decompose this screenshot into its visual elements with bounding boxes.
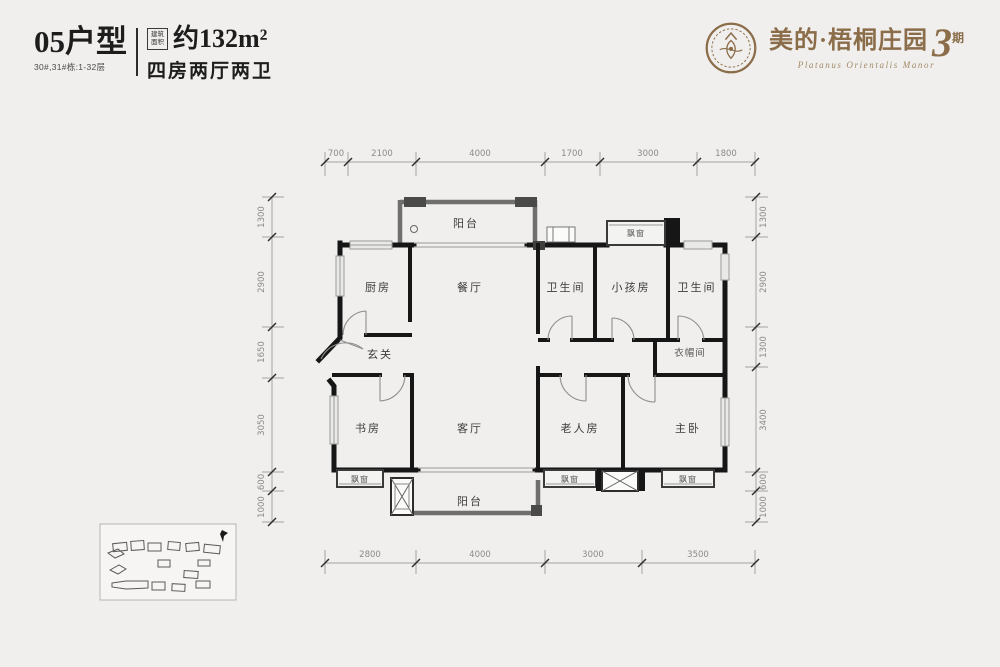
dim-right-3: 3400 <box>759 409 769 431</box>
dim-bottom-1: 4000 <box>469 550 491 560</box>
dimension-lines <box>262 152 768 574</box>
dim-bottom-0: 2800 <box>359 550 381 560</box>
room-label-bath2: 卫生间 <box>678 280 717 294</box>
dim-right-5: 1000 <box>759 496 769 518</box>
dim-right-4: 600 <box>759 474 769 490</box>
dim-top-4: 3000 <box>637 149 659 159</box>
room-label-balcony-top: 阳台 <box>453 216 479 230</box>
room-label-elder-room: 老人房 <box>561 422 600 435</box>
room-label-study: 书房 <box>355 422 381 435</box>
room-label-cloakroom: 衣帽间 <box>674 347 706 359</box>
dim-left-2: 1650 <box>257 341 267 363</box>
room-label-kids-room: 小孩房 <box>612 281 651 294</box>
room-label-balcony-bottom: 阳台 <box>457 494 483 508</box>
dim-bottom-2: 3000 <box>582 550 604 560</box>
dim-right-2: 1300 <box>759 336 769 358</box>
bay-label-elder: 飘窗 <box>561 474 579 484</box>
bay-label-master: 飘窗 <box>679 474 697 484</box>
bay-windows <box>337 221 714 487</box>
dimension-ticks <box>268 158 760 567</box>
dim-right-0: 1300 <box>759 206 769 228</box>
bay-label-study: 飘窗 <box>351 474 369 484</box>
dim-top-1: 2100 <box>371 149 393 159</box>
duct-shaft <box>596 471 645 491</box>
dim-bottom-3: 3500 <box>687 550 709 560</box>
elevator-shaft <box>391 478 413 515</box>
corner-column <box>664 218 680 247</box>
room-labels: 阳台 厨房 餐厅 卫生间 小孩房 卫生间 飘窗 玄关 衣帽间 书房 客厅 老人房… <box>351 216 717 508</box>
dim-top-0: 700 <box>328 149 344 159</box>
dim-left-4: 600 <box>257 474 267 490</box>
room-label-kitchen: 厨房 <box>365 281 391 294</box>
room-label-foyer: 玄关 <box>367 347 393 361</box>
dim-top-5: 1800 <box>715 149 737 159</box>
room-label-living: 客厅 <box>457 421 483 435</box>
dim-right-1: 2900 <box>759 271 769 293</box>
dim-top-2: 4000 <box>469 149 491 159</box>
site-map <box>100 524 236 600</box>
room-label-bath1: 卫生间 <box>547 280 586 294</box>
dim-left-1: 2900 <box>257 271 267 293</box>
floorplan-drawing: 700 2100 4000 1700 3000 1800 2800 4000 3… <box>0 0 1000 667</box>
dim-left-3: 3050 <box>257 414 267 436</box>
floorplan-page: 05户型 30#,31#栋:1-32层 建筑 面积 约132m² 四房两厅两卫 <box>0 0 1000 667</box>
room-label-dining: 餐厅 <box>457 280 483 294</box>
room-label-master: 主卧 <box>675 422 701 435</box>
dim-top-3: 1700 <box>561 149 583 159</box>
dim-left-0: 1300 <box>257 206 267 228</box>
bay-label-top: 飘窗 <box>627 228 645 238</box>
dim-left-5: 1000 <box>257 496 267 518</box>
